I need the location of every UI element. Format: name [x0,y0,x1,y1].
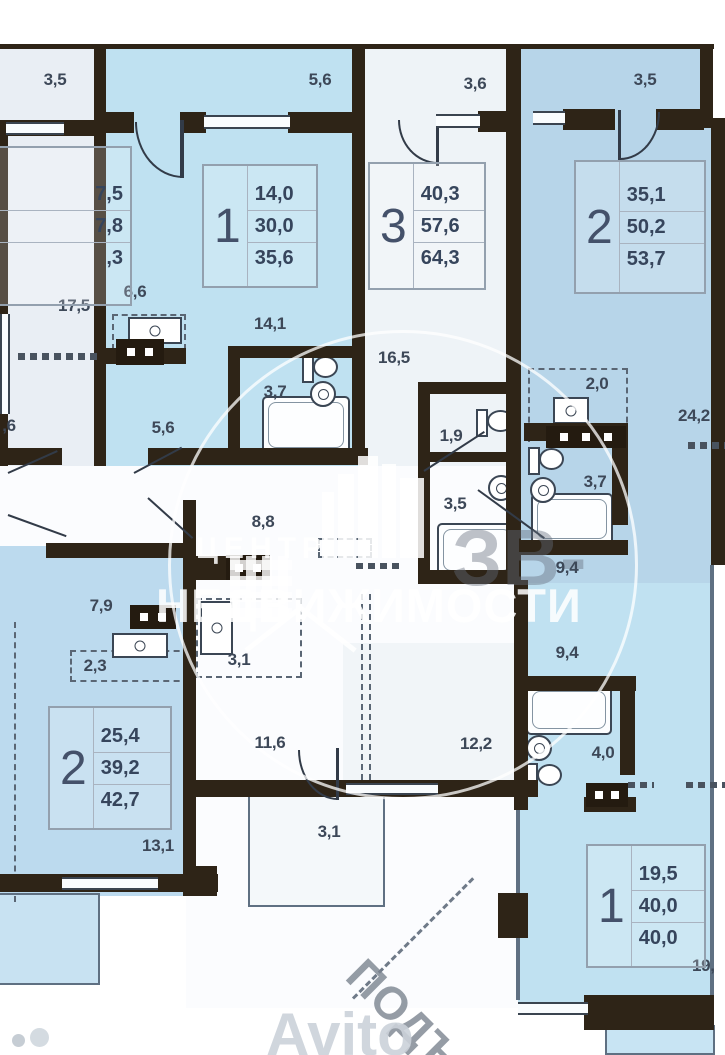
area-value: 14,0 [248,179,316,210]
room-label-balcony-apt3: 3,6 [448,74,502,94]
room-label-8-8: 8,8 [236,512,290,532]
room-label-7-9: 7,9 [74,596,128,616]
apartment-number: 2 [50,741,93,796]
room-label-bath-3-7-b: 3,7 [568,472,622,492]
apartment-number: 1 [204,199,247,254]
glazing-line-dashed [14,622,16,902]
apartment-info-apt3-top: 3 40,3 57,6 64,3 [368,162,486,290]
area-value: 50,2 [620,211,704,243]
watermark-building-icon [400,478,424,558]
window [436,114,480,128]
watermark-building-icon [338,474,354,558]
room-label-balcony-3-1: 3,1 [302,822,356,842]
apartment-number: 2 [576,200,619,255]
area-value: 19,5 [632,859,704,890]
wall [288,112,354,133]
apartment-info-left-partial: 7,5 7,8 ,3 [0,146,132,306]
room-label-11-6: 11,6 [238,733,302,753]
wall [656,109,704,130]
wall [498,893,528,938]
area-value: 40,0 [632,890,704,922]
area-value: 35,6 [248,242,316,274]
watermark-text-nedvizhimosti: НЕДВИЖИМОСТИ [156,578,582,633]
window [533,111,565,125]
area-value: 35,1 [620,180,704,211]
room-label-24-2: 24,2 [662,406,725,426]
room-label-hall-9-4-a: 9,4 [540,558,594,578]
window [6,122,64,135]
area-value: 40,3 [414,179,484,210]
apartment-number: 3 [370,199,413,254]
stove-icon [116,339,164,365]
area-value: 42,7 [94,784,170,816]
room-label-balcony-apt1: 5,6 [293,70,347,90]
apartment-info-apt2-bottom: 2 25,4 39,2 42,7 [48,706,172,830]
room-label-14-1: 14,1 [238,314,302,334]
area-value: 64,3 [414,242,484,274]
balcony-apt2-bottom [0,893,100,985]
room-label-balcony-apt2: 3,5 [618,70,672,90]
vent-marks [688,442,725,449]
apartment-info-apt2-top: 2 35,1 50,2 53,7 [574,160,706,294]
apartment-info-apt1-top: 1 14,0 30,0 35,6 [202,164,318,288]
watermark-building-icon [382,464,396,558]
area-value: 25,4 [94,721,170,752]
watermark-building-icon [358,456,378,558]
room-label-bath-3-7-a: 3,7 [248,382,302,402]
watermark-brand-logo-dot [12,1034,25,1047]
watermark-brand-logo-dot [30,1028,49,1047]
area-value: 39,2 [94,752,170,784]
watermark-brand: Avito [266,1000,414,1055]
room-label-partial-left: ,6 [0,416,26,436]
area-value: ,3 [0,242,130,274]
room-label-niche-2-0: 2,0 [570,374,624,394]
room-label-wardrobe-3-1: 3,1 [212,650,266,670]
vent-marks [18,353,98,360]
apartment-number: 1 [588,879,631,934]
room-label-hall-9-4-b: 9,4 [540,643,594,663]
room-label-16-5: 16,5 [362,348,426,368]
room-label-bath-4-0: 4,0 [576,743,630,763]
floor-plan: 3,5 5,6 3,6 3,5 17,5 ,6 6,6 5,6 14,1 3,7… [0,0,725,1055]
vent-marks [628,782,654,788]
area-value: 7,8 [0,210,130,242]
room-label-13-1: 13,1 [126,836,190,856]
area-value: 57,6 [414,210,484,242]
window [204,115,290,129]
wall [584,995,714,1030]
wall [46,543,188,558]
area-value: 40,0 [632,922,704,954]
room-label-2-3: 2,3 [68,656,122,676]
wall [478,111,508,132]
kitchen-sink-icon [112,633,168,658]
room-label-bath-3-5: 3,5 [428,494,482,514]
room-label-12-2: 12,2 [444,734,508,754]
room-label-balcony-left: 3,5 [28,70,82,90]
room-label-wc-1-9: 1,9 [424,426,478,446]
wall [711,118,725,565]
watermark-text-centr: ЦЕНТР [196,532,328,566]
wall [563,109,615,130]
balcony-3-1 [248,795,385,907]
wall [100,112,134,133]
window [0,314,10,414]
window [62,877,158,890]
window [518,1002,588,1015]
apartment-info-apt1-bottom: 1 19,5 40,0 40,0 [586,844,706,968]
area-value: 30,0 [248,210,316,242]
area-value: 53,7 [620,243,704,275]
room-label-hall-5-6: 5,6 [136,418,190,438]
vent-marks [686,782,725,788]
stove-icon [586,783,628,807]
area-value: 7,5 [0,179,130,210]
